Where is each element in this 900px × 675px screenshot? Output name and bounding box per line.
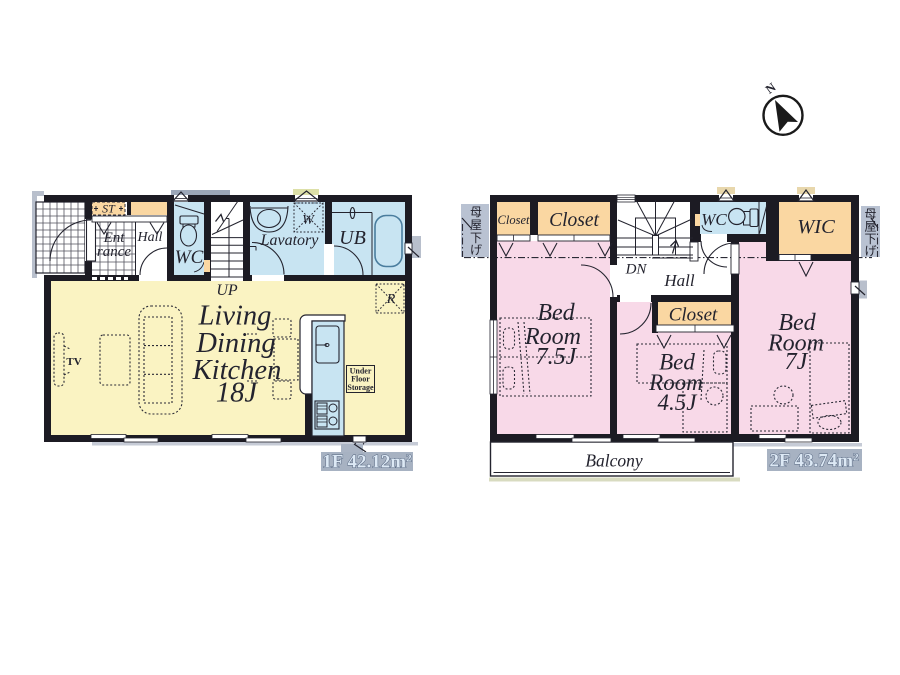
svg-text:Closet: Closet (669, 305, 718, 326)
svg-text:Hall: Hall (137, 230, 163, 245)
svg-text:WC: WC (175, 247, 204, 268)
svg-text:7J: 7J (785, 349, 809, 375)
svg-text:4.5J: 4.5J (658, 390, 699, 415)
svg-text:屋: 屋 (470, 218, 482, 232)
svg-text:母: 母 (470, 205, 482, 219)
svg-text:Bed: Bed (537, 300, 575, 326)
svg-text:UP: UP (216, 282, 238, 299)
svg-text:Balcony: Balcony (585, 451, 643, 471)
svg-text:ST: ST (102, 202, 116, 216)
svg-text:Closet: Closet (549, 210, 599, 231)
svg-text:2F 43.74m2: 2F 43.74m2 (769, 451, 859, 472)
svg-text:UB: UB (339, 227, 366, 249)
svg-text:Living: Living (198, 301, 272, 332)
svg-text:Hall: Hall (663, 271, 695, 290)
svg-text:WIC: WIC (797, 216, 835, 238)
svg-text:げ: げ (470, 243, 482, 257)
svg-text:Lavatory: Lavatory (260, 232, 320, 249)
svg-text:TV: TV (66, 356, 81, 368)
svg-text:Closet: Closet (498, 213, 530, 227)
svg-text:DN: DN (625, 262, 648, 278)
svg-text:げ: げ (864, 244, 876, 258)
svg-text:1F 42.12m2: 1F 42.12m2 (322, 452, 412, 473)
svg-text:Storage: Storage (347, 383, 374, 392)
svg-text:18J: 18J (216, 378, 259, 409)
svg-text:W: W (302, 213, 315, 228)
svg-text:rance: rance (97, 244, 131, 260)
svg-text:7.5J: 7.5J (536, 344, 578, 370)
svg-text:R: R (386, 292, 396, 307)
svg-text:WC: WC (701, 210, 727, 229)
